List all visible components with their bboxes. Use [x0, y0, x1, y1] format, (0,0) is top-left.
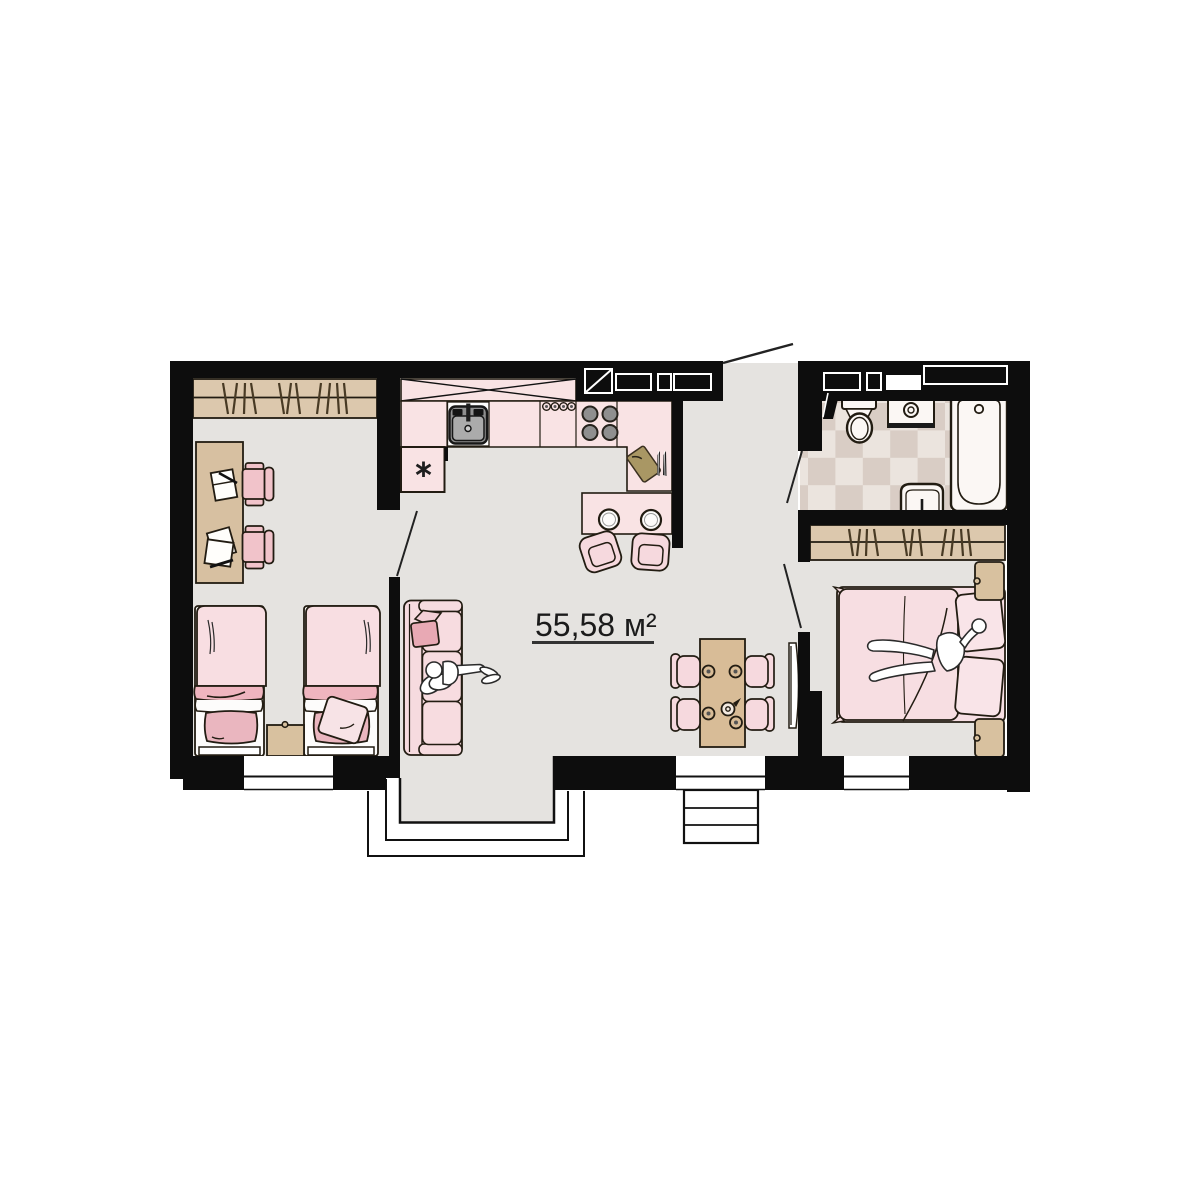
svg-text:55,58 м²: 55,58 м²	[535, 607, 657, 643]
